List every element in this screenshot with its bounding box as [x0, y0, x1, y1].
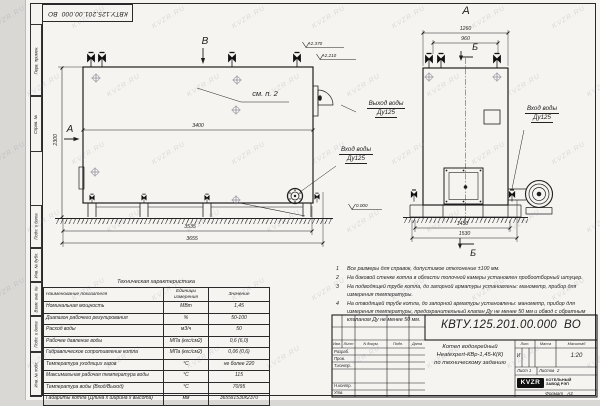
spec-units: °С — [164, 371, 209, 383]
spec-value: 0,6 (6,0) — [209, 336, 270, 348]
spec-name: Температура воды (Вход/Выход) — [44, 382, 164, 394]
tb-sheet-label: Лист — [517, 369, 528, 374]
tb-row-prov: Пров. — [334, 357, 345, 362]
table-row: Максимальная рабочая температура воды°С1… — [44, 371, 270, 383]
drain-valve-icon — [205, 194, 210, 203]
spec-col-value: Значение — [209, 288, 270, 302]
spec-units: мм — [164, 394, 209, 406]
spec-units: м3/ч — [164, 325, 209, 337]
tb-lit-value: И — [515, 354, 522, 360]
boiler-legs — [88, 203, 311, 217]
spec-name: Диапазон рабочего регулирования — [44, 313, 164, 325]
tb-product-line1: Котел водогрейный — [427, 344, 513, 352]
boiler-body-side — [83, 67, 313, 203]
door-bolts — [446, 170, 482, 203]
spec-name: Температура уходящих газов — [44, 359, 164, 371]
valve-icon — [88, 53, 95, 68]
dimension-lines — [58, 30, 519, 247]
front-view-title: А — [458, 5, 474, 17]
tb-row-razrab: Разраб. — [334, 350, 349, 355]
tb-row-tkontr: Т.контр. — [334, 364, 351, 369]
note-number: 3 — [336, 284, 347, 299]
spec-units: % — [164, 313, 209, 325]
door-handle — [464, 185, 468, 189]
dim-top-inner: 960 — [446, 37, 486, 43]
dim-inner-width: 3400 — [178, 124, 218, 130]
valve-icon — [426, 54, 433, 69]
company-line2: ЗАВОД РЭП — [546, 382, 586, 387]
spec-value: не более 220 — [209, 359, 270, 371]
company-name: КОТЕЛЬНЫЙ ЗАВОД РЭП — [546, 378, 586, 387]
spec-table: Наименование показателя Единицы измерени… — [43, 287, 270, 406]
spec-units: °С — [164, 359, 209, 371]
valve-icon — [438, 54, 445, 69]
dim-height: 2300 — [54, 125, 60, 155]
note-text: На боковой стенке котла в области топочн… — [347, 275, 583, 283]
dim-base: 3535 — [160, 225, 220, 231]
label-water-inlet-front: Вход воды Ду125 — [514, 106, 570, 123]
spec-value: 70/95 — [209, 382, 270, 394]
section-letter-a: А — [62, 124, 78, 135]
notes-list: 1Все размеры для справок, допустимое отк… — [336, 266, 594, 326]
tb-massa-label: Масса — [535, 342, 556, 346]
note-item: 1Все размеры для справок, допустимое отк… — [336, 266, 594, 274]
spec-name: Максимальная рабочая температура воды — [44, 371, 164, 383]
spec-name: Гидравлическое сопротивление котла — [44, 348, 164, 360]
tb-sheets-label: Листов — [539, 369, 554, 374]
table-row: Рабочее давление водыМПа (кгс/см2)0,6 (6… — [44, 336, 270, 348]
dim-total: 3655 — [162, 237, 222, 243]
tb-product-line2: Heatexpert-КВр-1,45-К(К) — [427, 352, 513, 360]
inlet-flange-icon — [288, 189, 303, 204]
spec-value: 115 — [209, 371, 270, 383]
front-view-linework — [410, 58, 553, 225]
tb-masshtab-label: Масштаб — [556, 342, 597, 346]
spec-value: 1,45 — [209, 302, 270, 314]
format-row: Формат А3 — [528, 391, 590, 396]
note-number: 4 — [336, 301, 347, 324]
level-mid: +2.210 — [322, 53, 358, 58]
level-top: +2.370 — [308, 41, 344, 46]
note-text: На подводящей трубе котла, до запорной а… — [347, 284, 594, 299]
level-zero: 0.000 — [356, 203, 386, 208]
section-letter-b-bottom: Б — [466, 249, 480, 259]
valve-icon — [99, 53, 106, 68]
spec-name: Номинальная мощность — [44, 302, 164, 314]
ground-hatch-side — [55, 218, 333, 224]
label-water-inlet-text: Вход воды — [525, 106, 559, 114]
valve-icon — [494, 54, 501, 69]
label-water-inlet-dn: Ду125 — [531, 115, 553, 123]
note-item: 3На подводящей трубе котла, до запорной … — [336, 284, 594, 299]
section-letter-v: В — [198, 36, 212, 47]
dim-bottom-inner: 1430 — [443, 222, 483, 228]
drain-valve-icon — [142, 194, 147, 203]
tb-scale-value: 1:20 — [556, 353, 597, 360]
label-water-outlet-dn: Ду125 — [375, 110, 397, 118]
spec-name: Расход воды — [44, 325, 164, 337]
center-marks — [90, 72, 501, 204]
note-text: Все размеры для справок, допустимое откл… — [347, 266, 500, 274]
table-row: Диапазон рабочего регулирования%50-100 — [44, 313, 270, 325]
label-water-inlet-text: Вход воды — [339, 147, 373, 155]
spec-name: Габариты котла (Длина х ширина х высота) — [44, 394, 164, 406]
tb-col-podp: Подп. — [387, 342, 409, 346]
spec-value: 50-100 — [209, 313, 270, 325]
spec-table-title: Техническая характеристика — [43, 279, 269, 285]
drain-valve-icon — [411, 190, 417, 202]
tb-sheets-value: 2 — [557, 369, 559, 374]
tb-col-list: Лист — [342, 342, 355, 346]
table-row: Номинальная мощностьМВт1,45 — [44, 302, 270, 314]
table-row: Температура уходящих газов°Сне более 220 — [44, 359, 270, 371]
spec-name: Рабочее давление воды — [44, 336, 164, 348]
valve-icon — [294, 53, 301, 68]
table-row: Габариты котла (Длина х ширина х высота)… — [44, 394, 270, 406]
level-marks — [303, 42, 383, 210]
tb-product-line3: по техническому заданию — [427, 360, 513, 368]
dim-bottom-outer: 1530 — [445, 232, 485, 238]
label-water-outlet-text: Выход воды — [367, 101, 406, 109]
spec-value: 0,06 (0,6) — [209, 348, 270, 360]
spec-units: °С — [164, 382, 209, 394]
spec-col-name: Наименование показателя — [44, 288, 164, 302]
side-opening — [484, 110, 500, 124]
valve-icon — [229, 53, 236, 68]
outlet-elbow — [313, 86, 318, 116]
spec-value: 50 — [209, 325, 270, 337]
spec-header-row: Наименование показателя Единицы измерени… — [44, 288, 270, 302]
note-number: 2 — [336, 275, 347, 283]
tb-row-nkontr: Н.контр. — [334, 384, 352, 389]
valve-fittings — [88, 53, 515, 204]
label-water-inlet-side: Вход воды Ду125 — [331, 147, 381, 164]
note-number: 1 — [336, 266, 347, 274]
drain-valve-icon — [90, 194, 95, 203]
callout-see-note-2: см. п. 2 — [241, 90, 289, 98]
tb-product-name: Котел водогрейный Heatexpert-КВр-1,45-К(… — [427, 344, 513, 367]
tb-col-data: Дата — [409, 342, 425, 346]
table-row: Температура воды (Вход/Выход)°С70/95 — [44, 382, 270, 394]
tb-sheet-value: 1 — [529, 369, 531, 374]
tb-col-docum: N докум. — [355, 342, 387, 346]
tb-col-izm: Изм. — [332, 342, 342, 346]
spec-units: МПа (кгс/см2) — [164, 336, 209, 348]
spec-col-units: Единицы измерения — [164, 288, 209, 302]
format-value: А3 — [567, 391, 573, 396]
format-label: Формат — [545, 391, 563, 396]
label-water-outlet: Выход воды Ду125 — [356, 101, 416, 118]
label-water-inlet-dn: Ду125 — [345, 156, 367, 164]
tb-lit-label: Лит. — [515, 342, 535, 346]
furnace-door — [444, 168, 483, 204]
title-block-doc-number: КВТУ.125.201.00.000 ВО — [425, 319, 597, 332]
spec-value: 3655х1530х2370 — [209, 394, 270, 406]
section-letter-b-top: Б — [468, 43, 482, 53]
drain-valve-icon — [315, 193, 320, 202]
table-row: Расход водым3/ч50 — [44, 325, 270, 337]
tb-row-utv: Утв. — [334, 391, 344, 396]
spec-units: МВт — [164, 302, 209, 314]
table-row: Гидравлическое сопротивление котлаМПа (к… — [44, 348, 270, 360]
kvzr-logo: KVZR — [517, 378, 544, 389]
spec-units: МПа (кгс/см2) — [164, 348, 209, 360]
note-item: 2На боковой стенке котла в области топоч… — [336, 275, 594, 283]
dim-top-outer: 1260 — [446, 27, 486, 33]
